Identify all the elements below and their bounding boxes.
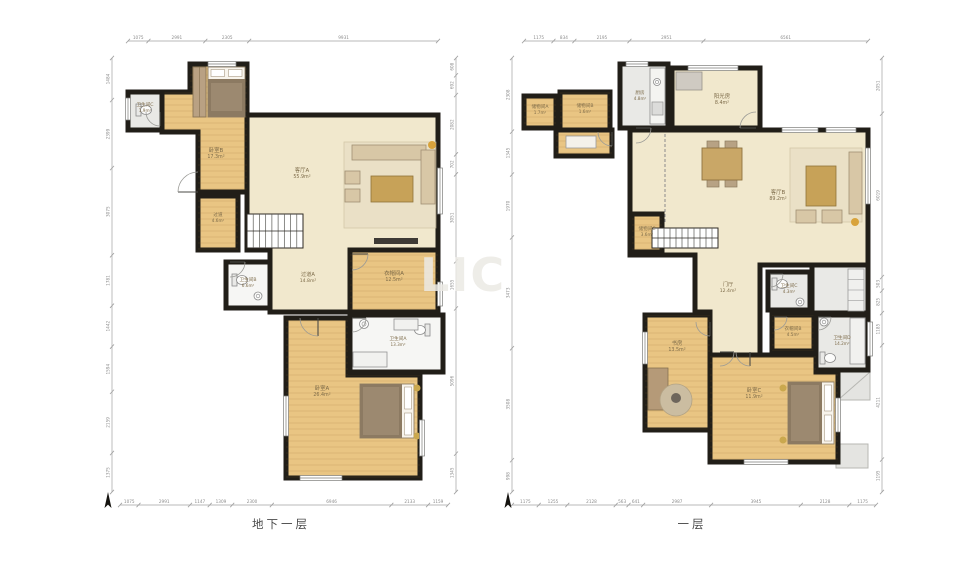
room-label-wc-b: 卫生间B xyxy=(240,276,257,283)
sink-icon xyxy=(254,292,262,300)
dining-table-icon xyxy=(702,141,742,187)
room-label-bedroom-c: 卧室C xyxy=(747,386,762,394)
dimension-value: 6946 xyxy=(326,499,337,504)
window-icon xyxy=(868,322,873,356)
floorplan-canvas: 客厅A55.9m²卧室B17.3m²卫生间C1.9m²过道4.6m²卫生间B6.… xyxy=(0,0,970,566)
bed-icon xyxy=(360,384,414,438)
ruler-bottom: 10752991114713092300694621331159 xyxy=(118,499,450,507)
room-label-storage-a: 储物间A xyxy=(532,103,550,110)
room-area-sunroom: 8.4m² xyxy=(715,100,729,106)
dimension-value: 2991 xyxy=(159,499,170,504)
window-icon xyxy=(826,128,856,133)
window-icon xyxy=(836,398,841,432)
ruler-bottom: 1175125521285636412987394521281175 xyxy=(510,499,878,507)
plan-first-floor: 客厅B89.2m²储物间A1.7m²储物间B1.6m²厨房4.8m²阳光房8.4… xyxy=(505,35,885,531)
room-area-storage-c: 3.6m² xyxy=(641,232,654,237)
dimension-value: 1781 xyxy=(106,275,111,286)
room-label-extra: 门厅 xyxy=(723,280,733,288)
room-area-bedroom-b: 17.3m² xyxy=(207,154,224,160)
ruler-top: 1075299123059931 xyxy=(126,35,440,43)
dimension-value: 1345 xyxy=(450,467,455,478)
room-area-wc-b: 6.6m² xyxy=(242,283,255,288)
furniture-rect xyxy=(394,319,418,330)
dimension-value: 3508 xyxy=(506,399,511,410)
dimension-value: 6561 xyxy=(780,35,791,40)
bed-icon xyxy=(788,382,834,444)
dimension-value: 2159 xyxy=(106,417,111,428)
room-label-living-b: 客厅B xyxy=(771,188,786,196)
dimension-value: 6019 xyxy=(876,190,881,201)
dimension-value: 1309 xyxy=(216,499,227,504)
dimension-value: 1442 xyxy=(106,321,111,332)
room-area-storage-b: 1.6m² xyxy=(579,109,592,114)
window-icon xyxy=(643,332,648,364)
room-area-closet-a: 12.5m² xyxy=(385,277,402,283)
kitchen-counter-icon xyxy=(650,68,665,124)
room-area-extra: 14.8m² xyxy=(300,278,317,284)
room-label-living-a: 客厅A xyxy=(295,166,310,174)
dimension-value: 1255 xyxy=(548,499,559,504)
furniture-rect xyxy=(850,318,865,364)
room-area-study: 13.5m² xyxy=(668,347,685,353)
room-area-hall: 4.6m² xyxy=(212,218,225,223)
room-area-living-a: 55.9m² xyxy=(293,174,310,180)
dimension-value: 2195 xyxy=(597,35,608,40)
room-label-wc-d: 卫生间D xyxy=(833,334,851,341)
furniture-rect xyxy=(566,136,596,148)
dimension-value: 9931 xyxy=(338,35,349,40)
furniture-accent xyxy=(780,437,787,444)
room-area-wc-a: 13.3m² xyxy=(390,342,405,347)
furniture-rect xyxy=(676,72,702,90)
room-area-wc-c: 4.3m² xyxy=(783,289,796,294)
dimension-value: 1345 xyxy=(506,147,511,158)
dimension-value: 1594 xyxy=(106,364,111,375)
window-icon xyxy=(126,98,131,120)
dimension-value: 825 xyxy=(876,298,881,306)
room-label-kitchen: 厨房 xyxy=(635,89,645,96)
room-label-storage-c: 储物间C xyxy=(639,225,656,232)
dimension-value: 2305 xyxy=(222,35,233,40)
plan-title: 一层 xyxy=(678,517,707,531)
shelf-icon xyxy=(848,269,864,311)
ruler-right: 20516019503825118542111195 xyxy=(876,56,885,494)
room-label-wc-c: 卫生间C xyxy=(781,282,798,289)
ruler-left: 14842399307517811442159421591375 xyxy=(106,56,115,494)
window-icon xyxy=(688,66,738,71)
window-icon xyxy=(208,62,236,67)
dimension-value: 3051 xyxy=(450,212,455,223)
furniture-rect xyxy=(652,102,663,115)
room-label-wc-c: 卫生间C xyxy=(137,101,154,108)
bed-icon xyxy=(208,67,245,117)
furniture-rect xyxy=(371,176,413,202)
window-icon xyxy=(284,396,289,436)
dimension-value: 2399 xyxy=(106,128,111,139)
room-label-wc-a: 卫生间A xyxy=(390,335,408,342)
dimension-value: 1185 xyxy=(876,324,881,335)
room-area-living-b: 89.2m² xyxy=(769,196,786,202)
furniture-accent xyxy=(851,218,859,226)
room-label-sunroom: 阳光房 xyxy=(714,92,730,100)
furniture-rect xyxy=(353,352,387,367)
furniture-rect xyxy=(345,171,360,184)
room-label-extra: 过道A xyxy=(301,270,315,278)
furniture-rect xyxy=(849,152,862,214)
dimension-value: 1195 xyxy=(876,470,881,481)
room-area-closet-b: 4.5m² xyxy=(787,332,800,337)
dimension-value: 2051 xyxy=(876,80,881,91)
dimension-value: 1075 xyxy=(124,499,135,504)
dimension-value: 2128 xyxy=(586,499,597,504)
sink-icon xyxy=(360,320,369,329)
dimension-value: 4211 xyxy=(876,397,881,408)
dimension-value: 3945 xyxy=(751,499,762,504)
dimension-value: 1970 xyxy=(506,200,511,211)
dimension-value: 2951 xyxy=(661,35,672,40)
dimension-value: 1484 xyxy=(106,73,111,84)
dimension-value: 2128 xyxy=(820,499,831,504)
dimension-value: 3075 xyxy=(106,206,111,217)
dimension-value: 1655 xyxy=(450,279,455,290)
furniture-rect xyxy=(822,210,842,223)
ruler-top: 1175834219529516561 xyxy=(522,35,870,43)
plan-basement: 客厅A55.9m²卧室B17.3m²卫生间C1.9m²过道4.6m²卫生间B6.… xyxy=(105,35,459,531)
furniture-accent xyxy=(780,385,787,392)
dimension-value: 503 xyxy=(876,280,881,288)
room-area-bedroom-a: 26.4m² xyxy=(313,392,330,398)
door-icon xyxy=(178,172,198,192)
furniture-accent xyxy=(671,393,681,403)
window-icon xyxy=(866,148,871,204)
plan-title: 地下一层 xyxy=(252,517,310,531)
dimension-value: 563 xyxy=(618,499,626,504)
dimension-value: 608 xyxy=(450,62,455,70)
dimension-value: 2991 xyxy=(172,35,183,40)
tv-cabinet-icon xyxy=(374,238,418,244)
floorplan-image: 客厅A55.9m²卧室B17.3m²卫生间C1.9m²过道4.6m²卫生间B6.… xyxy=(0,0,970,566)
room-area-kitchen: 4.8m² xyxy=(634,96,647,101)
room-area-bedroom-c: 11.9m² xyxy=(745,394,762,400)
wardrobe-icon xyxy=(193,67,206,117)
room-floor-texture xyxy=(198,196,238,250)
dimension-value: 1159 xyxy=(433,499,444,504)
window-icon xyxy=(438,282,443,306)
sink-icon xyxy=(654,79,661,86)
dimension-value: 1175 xyxy=(520,499,531,504)
furniture-accent xyxy=(414,385,421,392)
window-icon xyxy=(626,62,648,67)
dimension-value: 1175 xyxy=(533,35,544,40)
dimension-value: 834 xyxy=(560,35,568,40)
compass-north-icon xyxy=(505,492,512,508)
furniture-rect xyxy=(421,150,435,204)
stairs-icon xyxy=(652,228,718,248)
outdoor-area xyxy=(836,444,868,468)
dimension-value: 2133 xyxy=(404,499,415,504)
room-label-storage-b: 储物间B xyxy=(577,102,594,109)
sink-icon xyxy=(820,318,828,326)
dimension-value: 1175 xyxy=(857,499,868,504)
furniture-rect xyxy=(352,145,426,160)
window-icon xyxy=(744,460,788,465)
dimension-value: 3473 xyxy=(506,287,511,298)
dimension-value: 5096 xyxy=(450,375,455,386)
dimension-value: 2308 xyxy=(506,89,511,100)
dimension-value: 1147 xyxy=(195,499,206,504)
room-area-extra: 12.4m² xyxy=(720,288,737,294)
room-label-closet-a: 衣帽间A xyxy=(384,269,404,277)
room-label-hall: 过道 xyxy=(213,211,223,218)
ruler-right: 60869220827023051165550961345 xyxy=(450,56,459,494)
dimension-value: 692 xyxy=(450,81,455,89)
room-area-wc-d: 14.2m² xyxy=(834,341,849,346)
compass-north-icon xyxy=(105,492,112,508)
ruler-left: 23081345197034733508998 xyxy=(506,56,515,494)
window-icon xyxy=(300,476,342,481)
window-icon xyxy=(420,420,425,456)
dimension-value: 2082 xyxy=(450,119,455,130)
dimension-value: 2300 xyxy=(247,499,258,504)
room-area-wc-c: 1.9m² xyxy=(139,108,152,113)
dimension-value: 702 xyxy=(450,160,455,168)
dimension-value: 1375 xyxy=(106,467,111,478)
room-label-bedroom-b: 卧室B xyxy=(209,146,224,154)
dimension-value: 2987 xyxy=(672,499,683,504)
room-area-storage-a: 1.7m² xyxy=(534,110,547,115)
furniture-rect xyxy=(796,210,816,223)
room-label-study: 书房 xyxy=(672,339,683,347)
sink-icon xyxy=(796,298,804,306)
room-label-bedroom-a: 卧室A xyxy=(315,384,330,392)
window-icon xyxy=(438,168,443,214)
dimension-value: 1075 xyxy=(133,35,144,40)
room-label-closet-b: 衣帽间B xyxy=(785,325,802,332)
dimension-value: 998 xyxy=(506,472,511,480)
furniture-rect xyxy=(806,166,836,206)
window-icon xyxy=(782,128,818,133)
furniture-accent xyxy=(428,141,436,149)
furniture-rect xyxy=(345,189,360,202)
dimension-value: 641 xyxy=(632,499,640,504)
stairs-icon xyxy=(247,214,303,248)
